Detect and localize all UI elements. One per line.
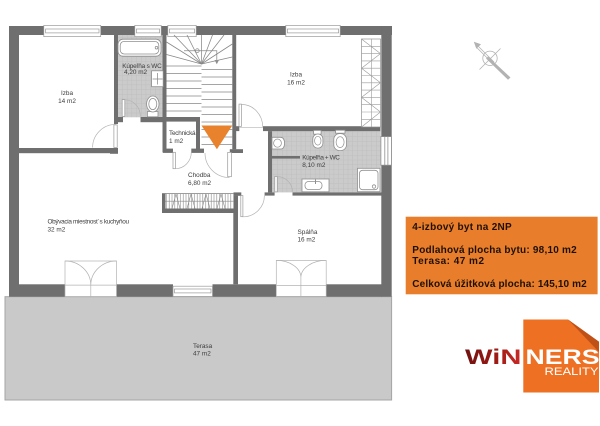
svg-text:Obývacia miestnosť s kuchyňou: Obývacia miestnosť s kuchyňou [48,219,130,226]
svg-text:47 m2: 47 m2 [193,350,211,357]
svg-text:WiN: WiN [465,345,521,369]
svg-text:Chodba: Chodba [188,172,211,179]
svg-text:Izba: Izba [61,90,74,97]
svg-text:REALITY: REALITY [545,366,599,378]
svg-text:6,80 m2: 6,80 m2 [188,180,212,187]
svg-text:Izba: Izba [290,72,303,79]
svg-text:8,10 m2: 8,10 m2 [302,162,326,169]
svg-text:14 m2: 14 m2 [58,98,76,105]
svg-text:32 m2: 32 m2 [48,227,66,234]
svg-text:Kúpeľňa + WC: Kúpeľňa + WC [302,155,340,162]
svg-text:4-izbový byt na 2NP: 4-izbový byt na 2NP [412,222,512,233]
svg-text:Terasa: Terasa [193,343,213,350]
svg-text:16 m2: 16 m2 [298,237,316,244]
svg-text:Podlahová plocha bytu: 98,10 m: Podlahová plocha bytu: 98,10 m2 [412,245,577,256]
svg-text:16 m2: 16 m2 [287,80,305,87]
svg-text:Technická: Technická [169,130,196,137]
svg-text:Celková úžitková plocha: 145,1: Celková úžitková plocha: 145,10 m2 [412,279,587,290]
svg-text:Spálňa: Spálňa [298,229,318,236]
svg-text:Terasa: 47 m2: Terasa: 47 m2 [412,256,484,267]
svg-text:4,20 m2: 4,20 m2 [124,69,148,76]
svg-text:1 m2: 1 m2 [169,138,184,145]
